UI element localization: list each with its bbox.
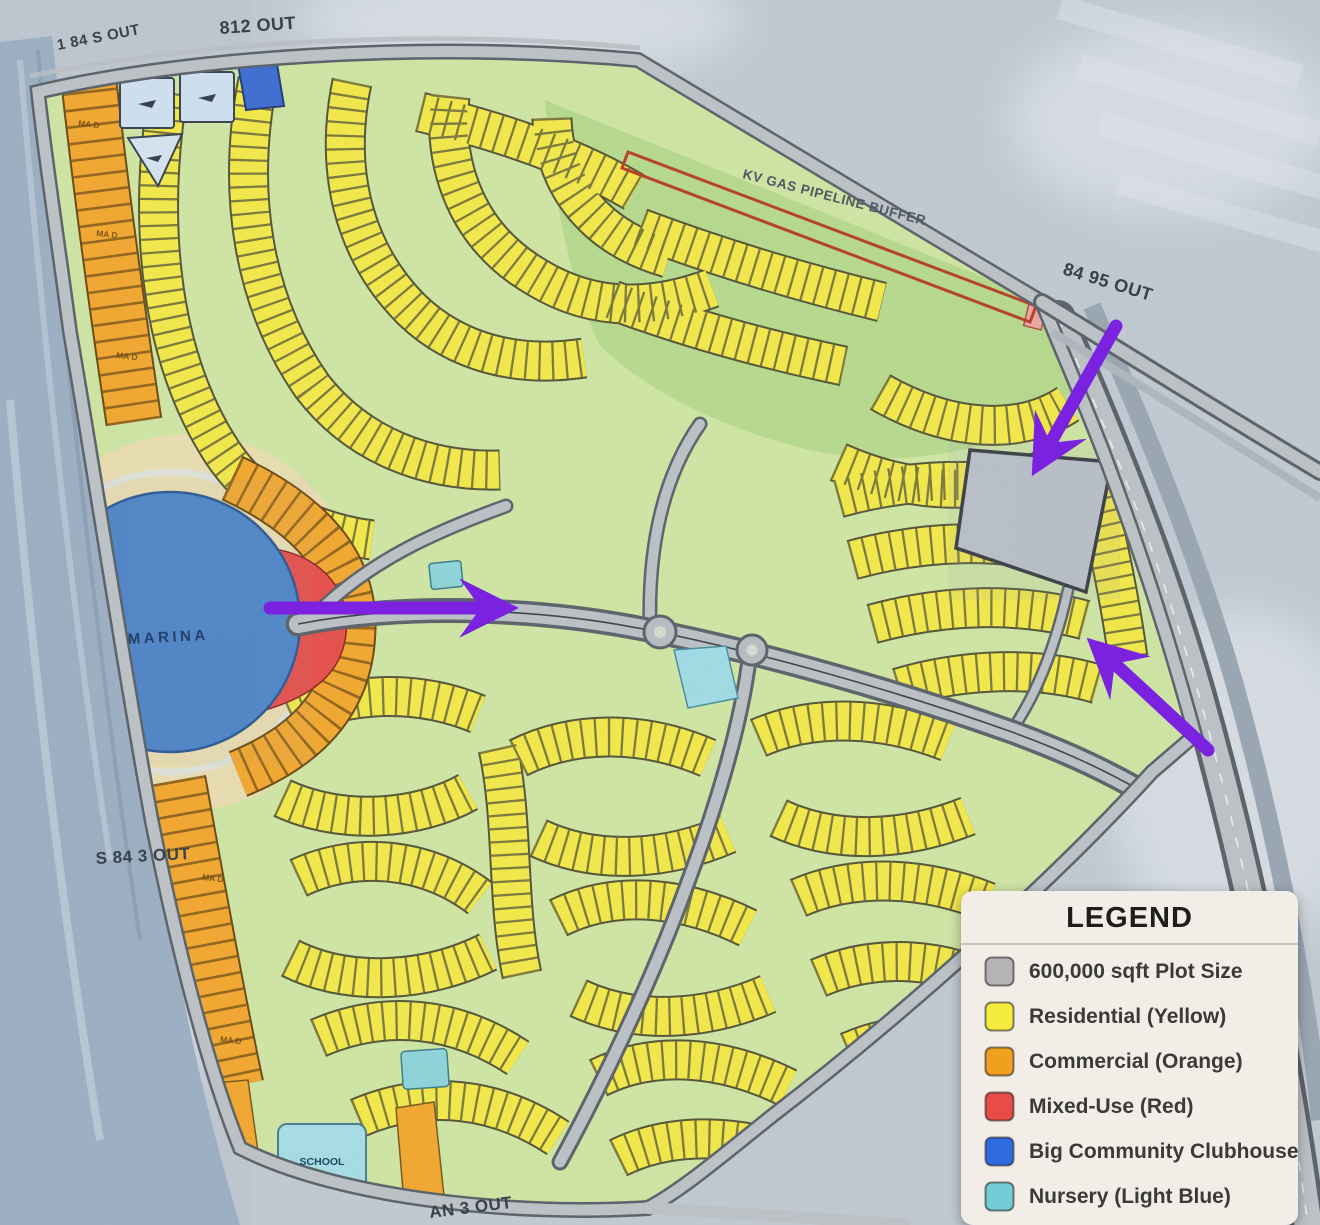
masterplan-screenshot: 1 84 S OUT 812 OUT 84 95 OUT S 84 3 OUT … bbox=[0, 0, 1320, 1225]
school-label: SCHOOL bbox=[300, 1156, 346, 1168]
legend-swatch-yellow bbox=[984, 1001, 1015, 1032]
legend-label: Residential (Yellow) bbox=[1029, 1005, 1226, 1029]
legend-title: LEGEND bbox=[961, 891, 1298, 943]
legend-label: 600,000 sqft Plot Size bbox=[1029, 960, 1243, 984]
legend-item-residential: Residential (Yellow) bbox=[961, 994, 1298, 1039]
legend-item-clubhouse: Big Community Clubhouse bbox=[961, 1129, 1298, 1174]
legend-label: Commercial (Orange) bbox=[1029, 1050, 1243, 1074]
legend-divider bbox=[961, 943, 1298, 945]
legend: LEGEND 600,000 sqft Plot Size Residentia… bbox=[961, 891, 1298, 1225]
legend-item-plot-size: 600,000 sqft Plot Size bbox=[961, 949, 1298, 994]
legend-swatch-orange bbox=[984, 1046, 1015, 1077]
legend-swatch-gray bbox=[984, 956, 1015, 987]
legend-swatch-red bbox=[984, 1091, 1015, 1122]
legend-item-nursery: Nursery (Light Blue) bbox=[961, 1174, 1298, 1219]
legend-swatch-lightblue bbox=[984, 1181, 1015, 1212]
legend-label: Mixed-Use (Red) bbox=[1029, 1095, 1194, 1119]
legend-swatch-blue bbox=[984, 1136, 1015, 1167]
legend-label: Big Community Clubhouse bbox=[1029, 1140, 1298, 1164]
legend-item-mixed-use: Mixed-Use (Red) bbox=[961, 1084, 1298, 1129]
legend-label: Nursery (Light Blue) bbox=[1029, 1185, 1231, 1209]
legend-item-commercial: Commercial (Orange) bbox=[961, 1039, 1298, 1084]
